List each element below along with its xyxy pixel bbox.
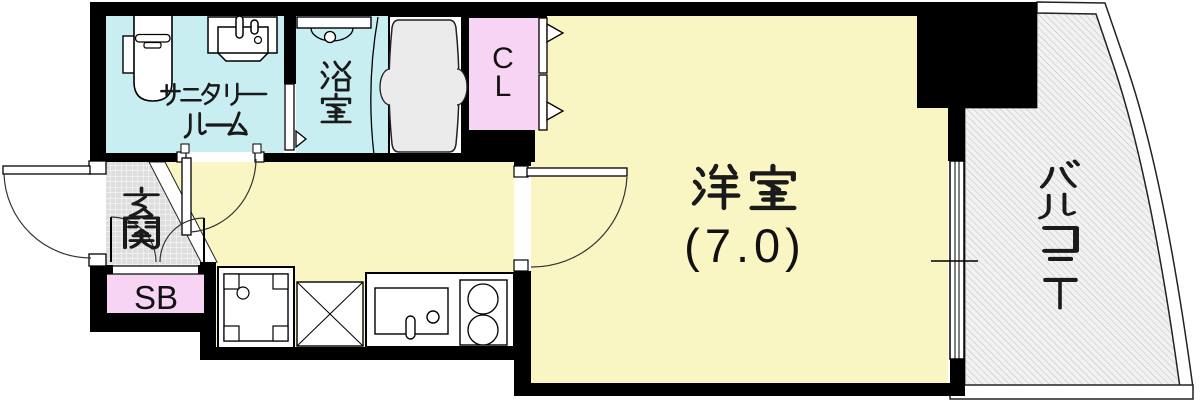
svg-text:SB: SB — [134, 279, 178, 316]
svg-text:(7.0): (7.0) — [684, 219, 806, 272]
svg-text:L: L — [495, 70, 512, 103]
